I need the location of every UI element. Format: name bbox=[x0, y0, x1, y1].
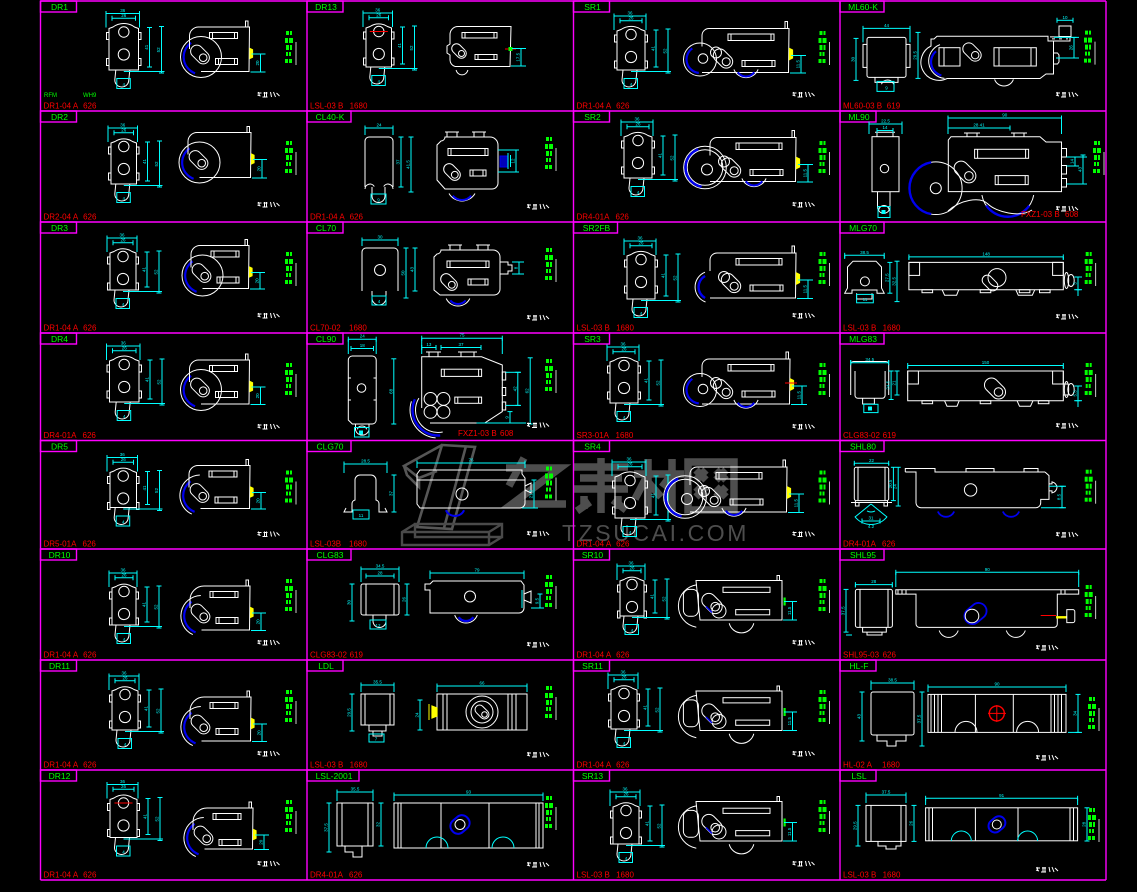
svg-text:619: 619 bbox=[887, 102, 901, 111]
svg-text:LSL-03B: LSL-03B bbox=[310, 540, 341, 549]
svg-text:35.5: 35.5 bbox=[351, 787, 360, 792]
svg-text:DR1: DR1 bbox=[51, 2, 68, 12]
svg-text:9.5: 9.5 bbox=[535, 597, 540, 604]
svg-text:608: 608 bbox=[1065, 210, 1079, 219]
svg-text:18: 18 bbox=[360, 343, 366, 348]
svg-text:41: 41 bbox=[142, 267, 147, 273]
svg-text:12: 12 bbox=[375, 623, 381, 628]
svg-text:38.5: 38.5 bbox=[860, 250, 869, 255]
svg-text:52: 52 bbox=[657, 823, 662, 829]
svg-text:5.5: 5.5 bbox=[1073, 390, 1078, 397]
svg-text:LSL-2001: LSL-2001 bbox=[316, 771, 353, 781]
svg-text:26: 26 bbox=[122, 345, 128, 350]
svg-text:26: 26 bbox=[623, 791, 629, 796]
svg-text:30: 30 bbox=[377, 235, 383, 240]
svg-text:1680: 1680 bbox=[616, 324, 634, 333]
svg-text:619: 619 bbox=[883, 431, 897, 440]
svg-text:76: 76 bbox=[468, 458, 474, 463]
svg-text:37.5: 37.5 bbox=[917, 714, 922, 723]
svg-text:22: 22 bbox=[869, 458, 875, 463]
svg-text:24.5: 24.5 bbox=[886, 380, 891, 389]
svg-text:14: 14 bbox=[882, 125, 888, 130]
svg-text:24: 24 bbox=[415, 712, 420, 718]
svg-text:11: 11 bbox=[863, 297, 868, 302]
svg-text:26: 26 bbox=[402, 597, 407, 603]
svg-text:1680: 1680 bbox=[616, 871, 634, 880]
svg-text:LSL-03 B: LSL-03 B bbox=[843, 871, 876, 880]
svg-text:30: 30 bbox=[347, 600, 352, 606]
svg-text:28: 28 bbox=[1082, 821, 1087, 827]
svg-text:52: 52 bbox=[154, 161, 159, 167]
svg-text:41: 41 bbox=[651, 493, 656, 499]
svg-text:52: 52 bbox=[673, 275, 678, 281]
svg-text:626: 626 bbox=[616, 540, 630, 549]
svg-text:626: 626 bbox=[616, 651, 630, 660]
svg-text:11.5: 11.5 bbox=[797, 390, 802, 399]
svg-text:8.5: 8.5 bbox=[1057, 493, 1062, 500]
svg-text:1680: 1680 bbox=[349, 540, 367, 549]
svg-text:52: 52 bbox=[156, 708, 161, 714]
svg-text:26: 26 bbox=[638, 240, 644, 245]
svg-text:626: 626 bbox=[616, 761, 630, 770]
svg-text:SHL80: SHL80 bbox=[850, 442, 876, 452]
svg-text:DR11: DR11 bbox=[49, 661, 70, 671]
svg-text:ML60-K: ML60-K bbox=[848, 2, 878, 12]
svg-text:26: 26 bbox=[121, 784, 127, 789]
svg-text:42: 42 bbox=[512, 386, 517, 392]
svg-text:75: 75 bbox=[459, 333, 465, 338]
svg-text:41: 41 bbox=[144, 706, 149, 712]
svg-text:41.5: 41.5 bbox=[406, 160, 411, 169]
svg-text:34: 34 bbox=[1073, 710, 1078, 716]
svg-text:37.5: 37.5 bbox=[882, 790, 891, 795]
svg-text:DR2-04 A: DR2-04 A bbox=[44, 213, 79, 222]
svg-text:11.5: 11.5 bbox=[787, 606, 792, 615]
svg-text:26: 26 bbox=[120, 237, 126, 242]
svg-text:52: 52 bbox=[670, 155, 675, 161]
svg-text:1680: 1680 bbox=[350, 102, 368, 111]
svg-text:CL40-K: CL40-K bbox=[316, 112, 345, 122]
svg-text:66: 66 bbox=[479, 681, 485, 686]
svg-text:DR1-04 A: DR1-04 A bbox=[44, 324, 79, 333]
svg-text:52: 52 bbox=[409, 45, 414, 51]
svg-text:ML90: ML90 bbox=[848, 112, 870, 122]
svg-text:41: 41 bbox=[661, 273, 666, 279]
svg-text:626: 626 bbox=[83, 431, 97, 440]
svg-text:41: 41 bbox=[143, 814, 148, 820]
svg-text:27.5: 27.5 bbox=[884, 273, 889, 282]
svg-text:626: 626 bbox=[83, 324, 97, 333]
svg-text:28 41: 28 41 bbox=[973, 123, 985, 128]
svg-text:41: 41 bbox=[643, 705, 648, 711]
svg-text:20: 20 bbox=[256, 619, 261, 625]
svg-text:20: 20 bbox=[256, 498, 261, 504]
svg-text:1680: 1680 bbox=[349, 324, 367, 333]
svg-text:32: 32 bbox=[376, 822, 381, 828]
svg-text:41: 41 bbox=[397, 43, 402, 49]
svg-text:11.5: 11.5 bbox=[803, 168, 808, 177]
svg-text:91: 91 bbox=[999, 793, 1005, 798]
svg-text:LSL-03 B: LSL-03 B bbox=[310, 102, 343, 111]
svg-text:52: 52 bbox=[154, 604, 159, 610]
svg-text:22.5: 22.5 bbox=[881, 119, 890, 124]
svg-text:1680: 1680 bbox=[350, 761, 368, 770]
svg-text:DR1-04 A: DR1-04 A bbox=[44, 761, 79, 770]
svg-text:24: 24 bbox=[893, 484, 898, 490]
svg-text:41: 41 bbox=[645, 821, 650, 827]
svg-text:26: 26 bbox=[1069, 45, 1074, 51]
svg-text:34.5: 34.5 bbox=[376, 564, 385, 569]
svg-text:52: 52 bbox=[655, 707, 660, 713]
svg-text:26: 26 bbox=[121, 127, 127, 132]
svg-text:68: 68 bbox=[388, 388, 393, 394]
svg-text:41: 41 bbox=[650, 594, 655, 600]
svg-text:LSL: LSL bbox=[851, 771, 866, 781]
svg-text:28.5: 28.5 bbox=[361, 459, 370, 464]
svg-text:12: 12 bbox=[511, 158, 516, 164]
svg-text:LSL-03 B: LSL-03 B bbox=[843, 324, 876, 333]
svg-text:13: 13 bbox=[426, 342, 432, 347]
svg-text:DR4: DR4 bbox=[51, 334, 68, 344]
svg-text:HL-F: HL-F bbox=[850, 661, 869, 671]
svg-text:619: 619 bbox=[350, 651, 364, 660]
svg-text:11.5: 11.5 bbox=[787, 716, 792, 725]
svg-text:DR1-04 A: DR1-04 A bbox=[310, 213, 345, 222]
svg-text:50: 50 bbox=[401, 270, 406, 276]
svg-text:41: 41 bbox=[142, 602, 147, 608]
svg-text:37: 37 bbox=[396, 159, 401, 165]
svg-text:90: 90 bbox=[1002, 113, 1008, 118]
svg-text:CL70-02: CL70-02 bbox=[310, 324, 341, 333]
svg-text:26: 26 bbox=[121, 457, 127, 462]
svg-text:RFM: RFM bbox=[44, 93, 57, 99]
svg-text:DR1-04 A: DR1-04 A bbox=[44, 651, 79, 660]
svg-text:41: 41 bbox=[658, 153, 663, 159]
svg-text:SR4: SR4 bbox=[584, 442, 601, 452]
svg-text:4.2: 4.2 bbox=[868, 524, 875, 529]
svg-text:26: 26 bbox=[621, 346, 627, 351]
svg-text:52: 52 bbox=[663, 48, 668, 54]
svg-text:DR1-04 A: DR1-04 A bbox=[577, 761, 612, 770]
svg-text:20: 20 bbox=[255, 60, 260, 66]
svg-text:DR1-04 A: DR1-04 A bbox=[44, 102, 79, 111]
svg-text:43: 43 bbox=[1078, 167, 1083, 173]
svg-text:26: 26 bbox=[629, 565, 635, 570]
svg-text:SR3-01A: SR3-01A bbox=[577, 431, 610, 440]
svg-text:41: 41 bbox=[144, 44, 149, 50]
svg-text:CL70: CL70 bbox=[316, 223, 337, 233]
svg-text:DR4-01A: DR4-01A bbox=[44, 431, 78, 440]
svg-text:626: 626 bbox=[83, 651, 97, 660]
svg-text:626: 626 bbox=[83, 540, 97, 549]
svg-text:11.5: 11.5 bbox=[803, 284, 808, 293]
svg-text:52: 52 bbox=[155, 816, 160, 822]
svg-text:11.5: 11.5 bbox=[796, 59, 801, 68]
svg-text:DR4-01A: DR4-01A bbox=[577, 213, 611, 222]
svg-text:CLG70: CLG70 bbox=[317, 442, 344, 452]
svg-text:CLG83: CLG83 bbox=[317, 550, 344, 560]
svg-text:41: 41 bbox=[142, 485, 147, 491]
svg-text:10: 10 bbox=[1062, 15, 1068, 20]
svg-text:608: 608 bbox=[500, 429, 514, 438]
svg-text:LDL: LDL bbox=[318, 661, 334, 671]
svg-text:DR1-04 A: DR1-04 A bbox=[44, 871, 79, 880]
svg-text:20: 20 bbox=[257, 166, 262, 172]
svg-text:DR5-01A: DR5-01A bbox=[44, 540, 78, 549]
svg-text:41: 41 bbox=[644, 378, 649, 384]
svg-text:43: 43 bbox=[857, 714, 862, 720]
svg-text:26: 26 bbox=[121, 13, 127, 18]
svg-text:SHL95-03: SHL95-03 bbox=[843, 651, 880, 660]
svg-text:626: 626 bbox=[83, 761, 97, 770]
svg-text:41: 41 bbox=[651, 46, 656, 52]
svg-text:24: 24 bbox=[360, 334, 366, 339]
svg-text:52: 52 bbox=[656, 380, 661, 386]
svg-text:DR1-04 A: DR1-04 A bbox=[577, 540, 612, 549]
svg-text:32.5: 32.5 bbox=[892, 277, 897, 286]
svg-text:26: 26 bbox=[122, 675, 128, 680]
svg-text:28: 28 bbox=[871, 579, 877, 584]
svg-text:SR2FB: SR2FB bbox=[583, 223, 611, 233]
svg-text:26: 26 bbox=[376, 12, 382, 17]
svg-text:626: 626 bbox=[882, 540, 896, 549]
svg-text:626: 626 bbox=[83, 102, 97, 111]
svg-text:52: 52 bbox=[156, 47, 161, 53]
svg-text:150: 150 bbox=[982, 360, 990, 365]
svg-text:MLG83: MLG83 bbox=[849, 334, 877, 344]
svg-text:1680: 1680 bbox=[616, 431, 634, 440]
svg-text:DR5: DR5 bbox=[51, 442, 68, 452]
svg-text:ML60-03 B: ML60-03 B bbox=[843, 102, 882, 111]
svg-text:DR3: DR3 bbox=[51, 223, 68, 233]
svg-text:79: 79 bbox=[474, 568, 480, 573]
svg-text:35.5: 35.5 bbox=[373, 680, 382, 685]
svg-text:62: 62 bbox=[525, 388, 530, 394]
svg-text:DR1-04 A: DR1-04 A bbox=[577, 102, 612, 111]
svg-text:26: 26 bbox=[628, 15, 634, 20]
svg-text:37.5: 37.5 bbox=[841, 606, 846, 615]
svg-text:26: 26 bbox=[635, 121, 641, 126]
svg-text:24: 24 bbox=[376, 123, 382, 128]
svg-text:41: 41 bbox=[142, 159, 147, 165]
svg-text:148: 148 bbox=[982, 251, 990, 256]
svg-text:28: 28 bbox=[377, 571, 383, 576]
svg-text:52: 52 bbox=[662, 596, 667, 602]
svg-text:31: 31 bbox=[868, 516, 874, 521]
svg-text:17.5: 17.5 bbox=[516, 52, 521, 61]
svg-text:90: 90 bbox=[994, 682, 1000, 687]
svg-text:26: 26 bbox=[909, 820, 914, 826]
svg-text:20: 20 bbox=[259, 839, 264, 845]
svg-text:93: 93 bbox=[466, 790, 472, 795]
svg-text:CL90: CL90 bbox=[316, 334, 337, 344]
svg-text:LSL-03 B: LSL-03 B bbox=[310, 761, 343, 770]
svg-text:1680: 1680 bbox=[882, 761, 900, 770]
svg-text:DR12: DR12 bbox=[49, 771, 71, 781]
svg-text:38.5: 38.5 bbox=[888, 678, 897, 683]
svg-text:30: 30 bbox=[851, 56, 856, 62]
svg-text:26: 26 bbox=[121, 572, 127, 577]
svg-text:626: 626 bbox=[350, 213, 364, 222]
svg-text:34.5: 34.5 bbox=[865, 357, 874, 362]
svg-text:DR4-01A: DR4-01A bbox=[310, 871, 344, 880]
svg-text:29.5: 29.5 bbox=[913, 51, 918, 60]
svg-text:626: 626 bbox=[349, 871, 363, 880]
svg-text:41: 41 bbox=[145, 377, 150, 383]
svg-text:26: 26 bbox=[627, 461, 633, 466]
svg-text:11.5: 11.5 bbox=[794, 498, 799, 507]
svg-text:CLG83-02: CLG83-02 bbox=[310, 651, 347, 660]
svg-text:14: 14 bbox=[1070, 159, 1075, 165]
svg-text:52: 52 bbox=[154, 488, 159, 494]
svg-text:1680: 1680 bbox=[883, 324, 901, 333]
svg-text:FXZ1-03 B: FXZ1-03 B bbox=[1021, 210, 1060, 219]
svg-text:20: 20 bbox=[257, 730, 262, 736]
svg-text:37: 37 bbox=[458, 342, 464, 347]
svg-text:LSL-03 B: LSL-03 B bbox=[577, 324, 610, 333]
svg-text:SR11: SR11 bbox=[582, 661, 603, 671]
svg-text:SR13: SR13 bbox=[582, 771, 604, 781]
svg-text:11: 11 bbox=[359, 513, 364, 518]
svg-text:29.5: 29.5 bbox=[853, 821, 858, 830]
svg-text:21.5: 21.5 bbox=[529, 489, 534, 498]
svg-text:DR10: DR10 bbox=[49, 550, 71, 560]
svg-text:52: 52 bbox=[154, 269, 159, 275]
svg-text:HL-02 A: HL-02 A bbox=[843, 761, 873, 770]
svg-text:626: 626 bbox=[883, 651, 897, 660]
svg-text:DR1-04 A: DR1-04 A bbox=[577, 651, 612, 660]
svg-text:90: 90 bbox=[985, 567, 991, 572]
svg-text:626: 626 bbox=[83, 213, 97, 222]
svg-text:26: 26 bbox=[621, 674, 627, 679]
svg-text:DR13: DR13 bbox=[315, 2, 337, 12]
svg-text:MLG70: MLG70 bbox=[849, 223, 877, 233]
svg-text:CLG83-02: CLG83-02 bbox=[843, 431, 880, 440]
svg-text:626: 626 bbox=[83, 871, 97, 880]
svg-text:SR2: SR2 bbox=[584, 112, 601, 122]
svg-text:11.5: 11.5 bbox=[787, 827, 792, 836]
svg-text:626: 626 bbox=[616, 213, 630, 222]
svg-text:SHL95: SHL95 bbox=[850, 550, 876, 560]
svg-text:SR1: SR1 bbox=[584, 2, 601, 12]
svg-text:WH9: WH9 bbox=[83, 93, 97, 99]
svg-text:21: 21 bbox=[892, 380, 897, 386]
svg-text:43: 43 bbox=[410, 267, 415, 273]
svg-text:20: 20 bbox=[255, 393, 260, 399]
svg-text:SR3: SR3 bbox=[584, 334, 601, 344]
svg-text:52: 52 bbox=[157, 379, 162, 385]
svg-text:37.5: 37.5 bbox=[324, 823, 329, 832]
svg-text:29.5: 29.5 bbox=[347, 708, 352, 717]
svg-text:DR4-01A: DR4-01A bbox=[843, 540, 877, 549]
svg-text:1680: 1680 bbox=[883, 871, 901, 880]
svg-text:44: 44 bbox=[884, 23, 890, 28]
svg-text:FXZ1-03 B: FXZ1-03 B bbox=[458, 429, 497, 438]
svg-text:SR10: SR10 bbox=[582, 550, 604, 560]
svg-text:20: 20 bbox=[255, 278, 260, 284]
svg-text:LSL-03 B: LSL-03 B bbox=[577, 871, 610, 880]
svg-text:DR2: DR2 bbox=[51, 112, 68, 122]
svg-text:626: 626 bbox=[616, 102, 630, 111]
svg-text:37: 37 bbox=[389, 491, 394, 497]
